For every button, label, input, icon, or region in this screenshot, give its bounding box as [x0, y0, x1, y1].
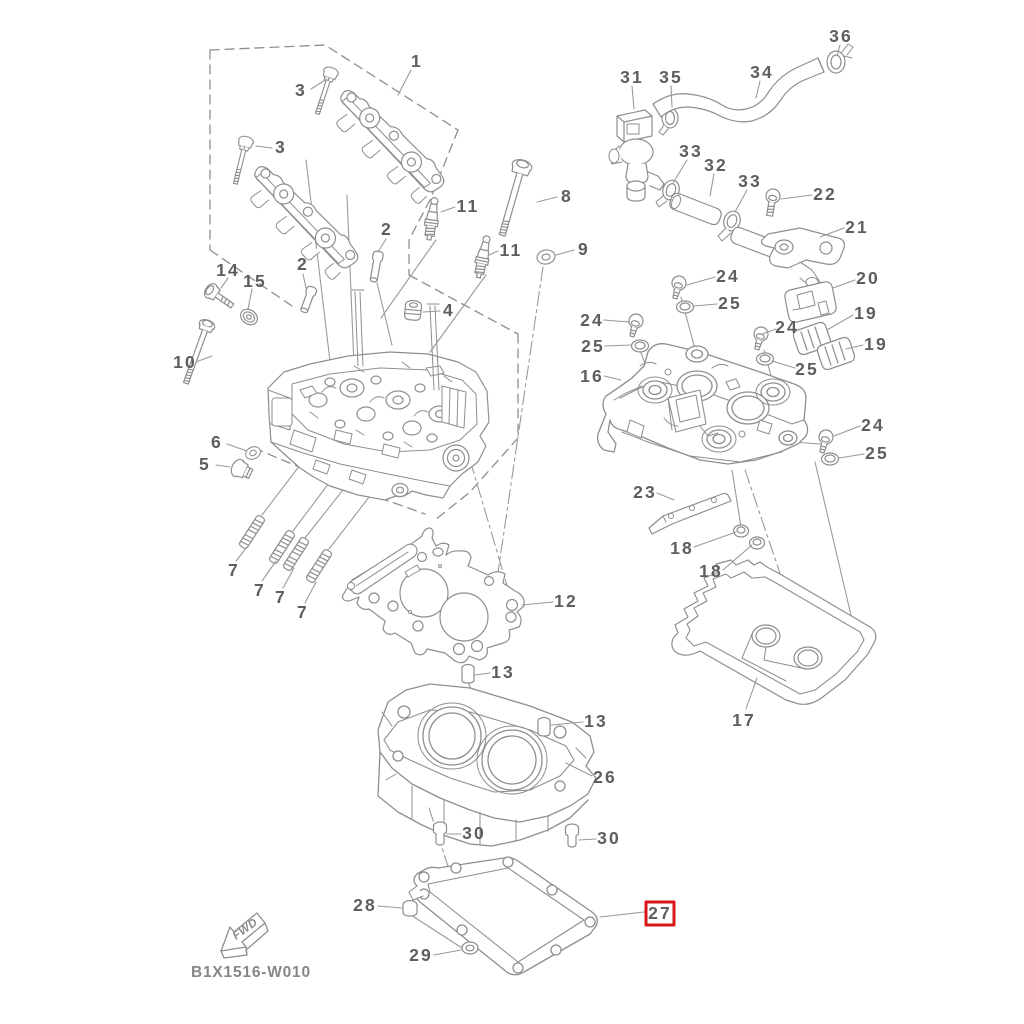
svg-text:36: 36 — [829, 26, 853, 46]
svg-text:20: 20 — [856, 268, 880, 288]
svg-text:16: 16 — [580, 366, 604, 386]
svg-text:25: 25 — [795, 359, 819, 379]
svg-text:25: 25 — [865, 443, 889, 463]
svg-text:27: 27 — [648, 903, 672, 923]
svg-text:13: 13 — [491, 662, 515, 682]
svg-text:12: 12 — [554, 591, 578, 611]
svg-text:24: 24 — [716, 266, 740, 286]
svg-text:3: 3 — [275, 137, 287, 157]
svg-text:7: 7 — [275, 587, 287, 607]
svg-text:33: 33 — [679, 141, 703, 161]
svg-text:18: 18 — [670, 538, 694, 558]
svg-text:29: 29 — [409, 945, 433, 965]
svg-text:3: 3 — [295, 80, 307, 100]
svg-text:4: 4 — [443, 300, 455, 320]
svg-text:2: 2 — [381, 219, 393, 239]
svg-text:35: 35 — [659, 67, 683, 87]
svg-text:7: 7 — [297, 602, 309, 622]
svg-text:18: 18 — [699, 561, 723, 581]
svg-text:24: 24 — [861, 415, 885, 435]
svg-text:30: 30 — [597, 828, 621, 848]
svg-text:7: 7 — [228, 560, 240, 580]
svg-text:31: 31 — [620, 67, 644, 87]
svg-text:25: 25 — [581, 336, 605, 356]
svg-text:23: 23 — [633, 482, 657, 502]
svg-text:11: 11 — [500, 240, 523, 260]
svg-text:24: 24 — [580, 310, 604, 330]
svg-text:19: 19 — [854, 303, 878, 323]
svg-text:9: 9 — [578, 239, 590, 259]
svg-text:5: 5 — [199, 454, 211, 474]
svg-text:10: 10 — [173, 352, 197, 372]
svg-text:24: 24 — [775, 317, 799, 337]
svg-text:28: 28 — [353, 895, 377, 915]
svg-text:14: 14 — [216, 260, 240, 280]
svg-text:B1X1516-W010: B1X1516-W010 — [191, 964, 311, 981]
svg-text:25: 25 — [718, 293, 742, 313]
svg-text:8: 8 — [561, 186, 573, 206]
svg-text:32: 32 — [704, 155, 728, 175]
svg-text:15: 15 — [243, 271, 267, 291]
svg-text:7: 7 — [254, 580, 266, 600]
svg-text:6: 6 — [211, 432, 223, 452]
svg-text:21: 21 — [845, 217, 869, 237]
svg-text:11: 11 — [457, 196, 480, 216]
svg-text:30: 30 — [462, 823, 486, 843]
svg-text:1: 1 — [411, 51, 423, 71]
svg-text:34: 34 — [750, 62, 774, 82]
svg-text:19: 19 — [864, 334, 888, 354]
svg-text:2: 2 — [297, 254, 309, 274]
svg-text:13: 13 — [584, 711, 608, 731]
svg-text:26: 26 — [593, 767, 617, 787]
svg-text:17: 17 — [732, 710, 756, 730]
svg-text:22: 22 — [813, 184, 837, 204]
svg-text:33: 33 — [738, 171, 762, 191]
